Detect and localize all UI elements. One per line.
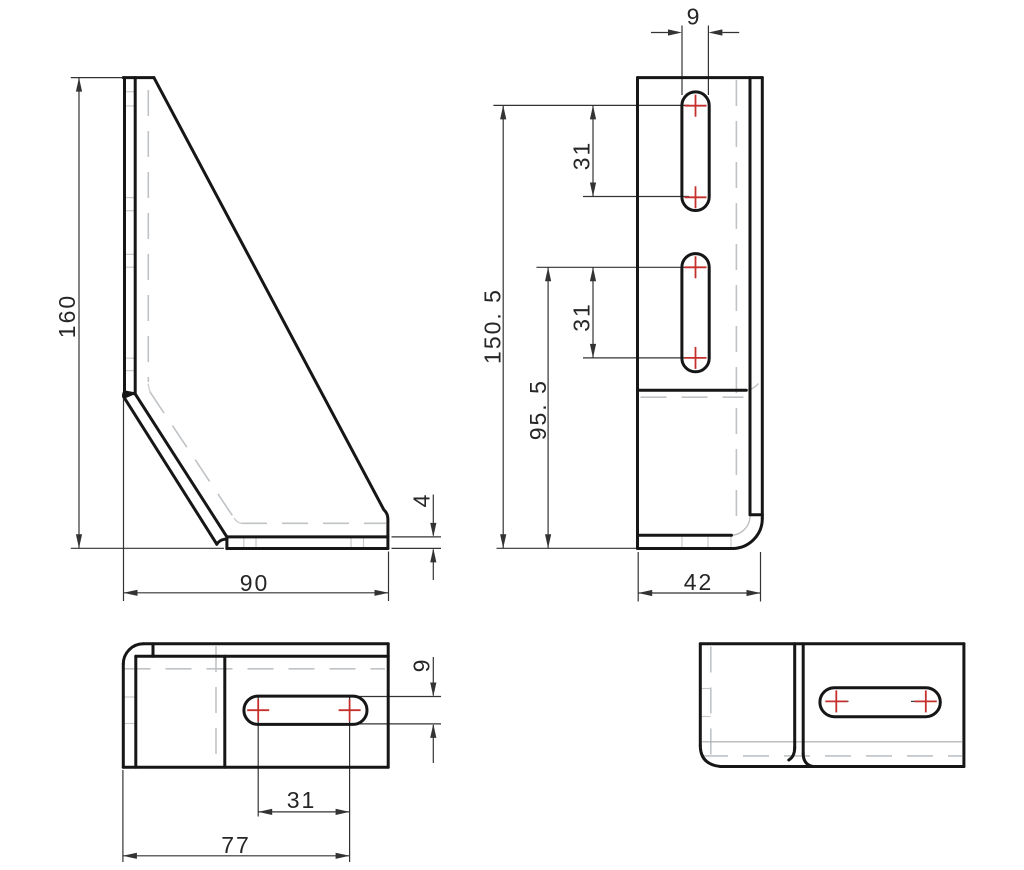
svg-text:160: 160 <box>54 294 80 338</box>
svg-text:77: 77 <box>221 832 251 858</box>
svg-text:4: 4 <box>408 493 434 508</box>
svg-text:9: 9 <box>408 658 434 673</box>
svg-text:42: 42 <box>684 569 714 595</box>
svg-text:95. 5: 95. 5 <box>525 379 551 440</box>
svg-text:31: 31 <box>568 302 594 332</box>
svg-text:31: 31 <box>568 141 594 171</box>
svg-text:31: 31 <box>287 787 317 813</box>
svg-text:150. 5: 150. 5 <box>480 288 506 364</box>
svg-text:9: 9 <box>687 4 702 30</box>
svg-text:90: 90 <box>240 570 270 596</box>
